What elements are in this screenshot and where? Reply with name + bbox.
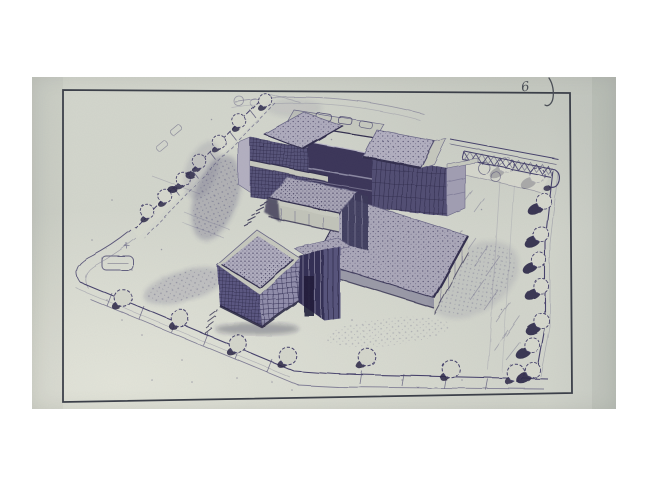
scanned-page: 6 <box>0 0 648 492</box>
site-plan-drawing: 6 <box>32 77 616 409</box>
left-margin-shade <box>32 77 63 409</box>
right-edge-shade <box>592 77 616 409</box>
paper-grain-texture <box>32 77 616 409</box>
blueprint-paper: 6 <box>32 77 616 409</box>
